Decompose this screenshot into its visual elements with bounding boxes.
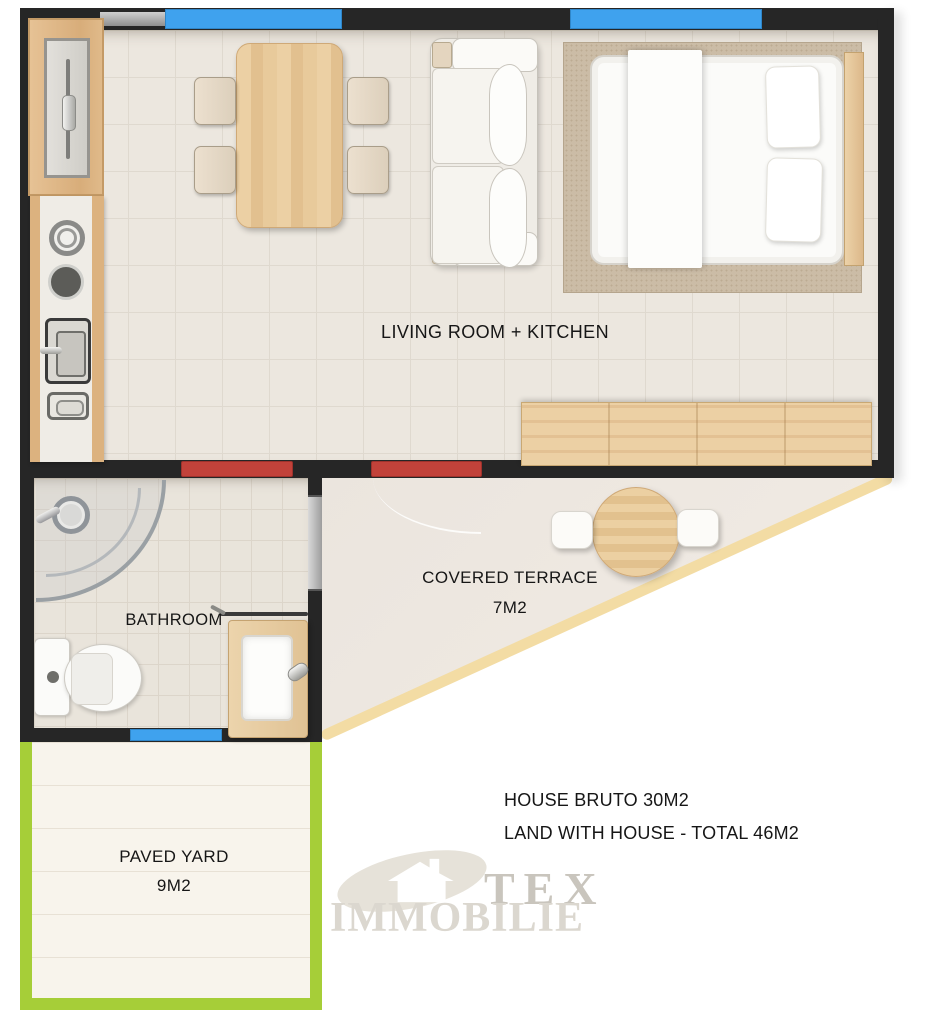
bathroom-door-leaf	[220, 612, 308, 616]
bathroom-label: BATHROOM	[124, 611, 224, 630]
terrace-stool	[551, 511, 593, 549]
watermark-brand-bottom: IMMOBILIE	[330, 897, 584, 939]
shower-head-icon	[52, 496, 90, 534]
dining-table	[236, 43, 343, 228]
hob-burner-icon	[49, 220, 85, 256]
kitchen-drainer	[47, 392, 89, 420]
fridge-door-panel	[44, 38, 90, 178]
note-house-area: HOUSE BRUTO 30M2	[504, 784, 799, 817]
sofa-back-cushion	[489, 168, 527, 268]
door-bathroom	[181, 461, 293, 477]
wall-right	[878, 8, 894, 478]
fridge	[28, 18, 104, 196]
vent-strip	[100, 12, 165, 26]
terrace-stool	[677, 509, 719, 547]
terrace-label: COVERED TERRACE 7M2	[395, 563, 625, 623]
bed-headboard	[844, 52, 864, 266]
dining-chair	[347, 77, 389, 125]
window-top-right	[570, 9, 762, 29]
dining-chair	[194, 146, 236, 194]
plan-notes: HOUSE BRUTO 30M2 LAND WITH HOUSE - TOTAL…	[504, 784, 799, 850]
window-top-left	[165, 9, 342, 29]
window-bathroom	[130, 729, 222, 741]
bathroom-glass-door	[308, 495, 322, 591]
terrace-label-line1: COVERED TERRACE	[395, 563, 625, 593]
dining-chair	[347, 146, 389, 194]
pillow	[765, 65, 821, 148]
sofa-armrest	[452, 38, 538, 72]
floor-plan: LIVING ROOM + KITCHEN BATHROOM COVERED T…	[0, 0, 926, 1024]
terrace-label-area: 7M2	[395, 593, 625, 623]
kitchen-sink	[45, 318, 91, 384]
yard-label-area: 9M2	[90, 872, 258, 901]
sideboard	[521, 402, 872, 466]
pillow	[765, 157, 823, 242]
washbasin-vanity	[228, 620, 308, 738]
fridge-handle	[66, 59, 70, 159]
note-land-area: LAND WITH HOUSE - TOTAL 46M2	[504, 817, 799, 850]
yard-label-line1: PAVED YARD	[90, 843, 258, 872]
sofa-back-cushion	[489, 64, 527, 166]
bed-blanket	[628, 50, 702, 268]
door-terrace	[371, 461, 482, 477]
living-room-label: LIVING ROOM + KITCHEN	[355, 322, 635, 343]
hob-knob-icon	[48, 264, 84, 300]
washbasin	[241, 635, 293, 721]
toilet	[64, 644, 142, 712]
sofa-foot	[432, 42, 452, 68]
yard-label: PAVED YARD 9M2	[90, 843, 258, 901]
dining-chair	[194, 77, 236, 125]
